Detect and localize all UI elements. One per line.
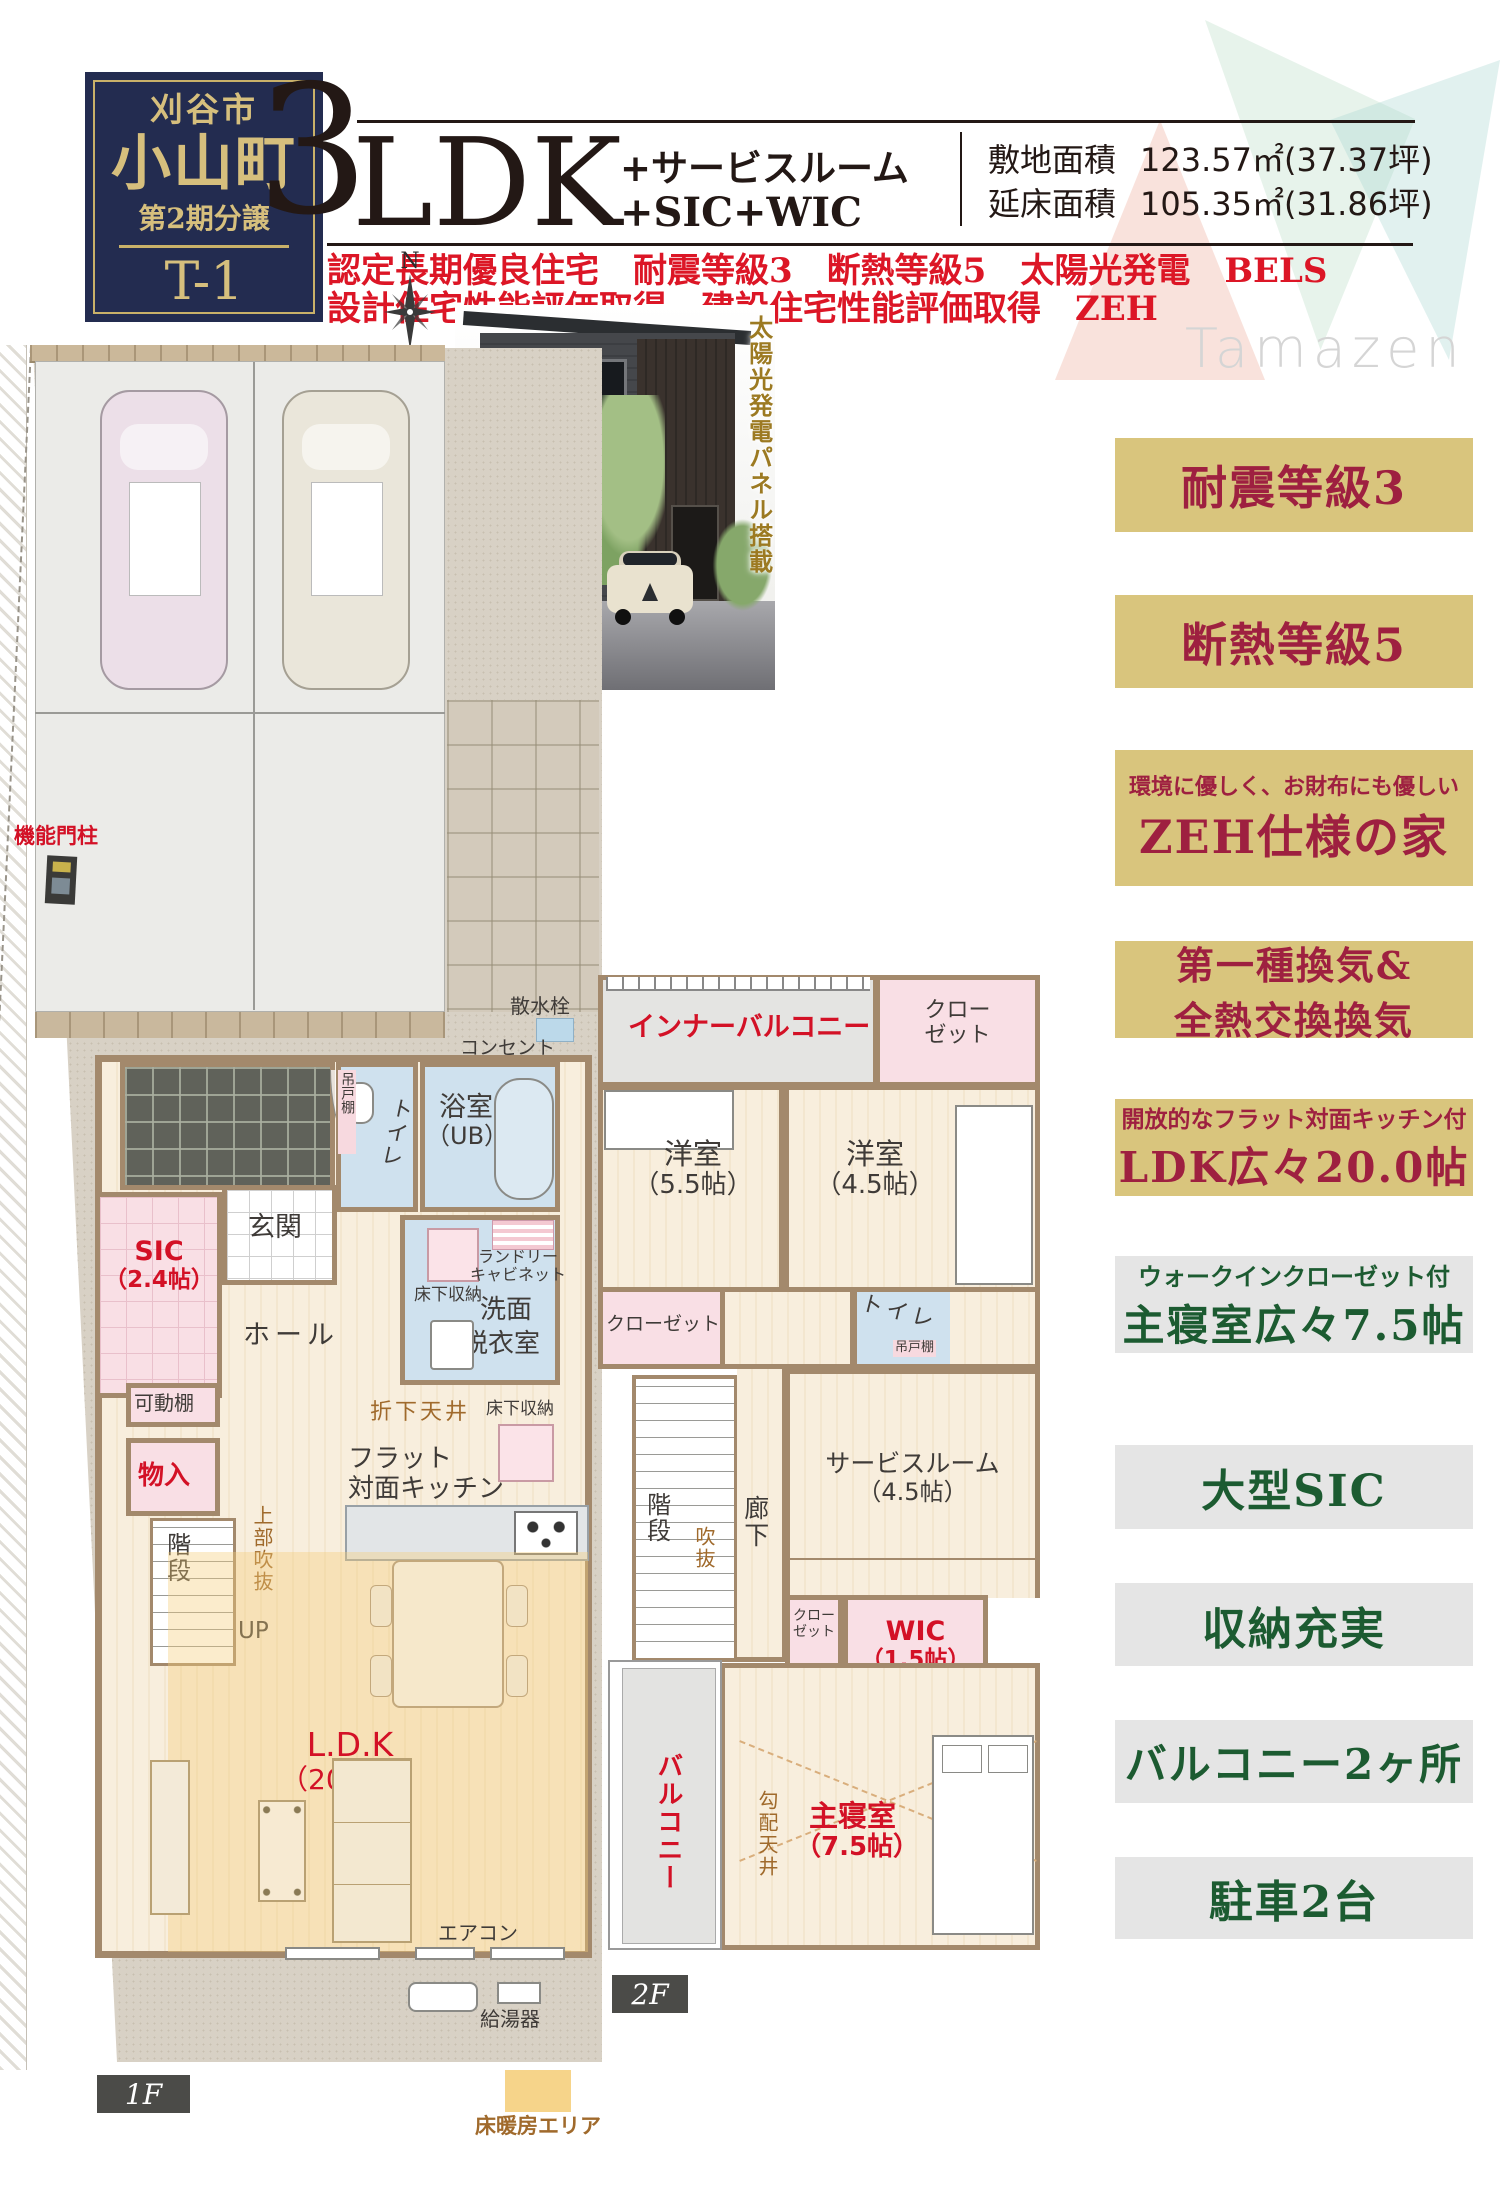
closet-2f-bottom-label: クロー ゼット [787,1608,841,1640]
bath-label-line2: （UB） [426,1123,506,1151]
parked-car-1 [100,390,228,690]
closet-tr-line1: クロー [900,998,1015,1023]
plan-plus2: +SIC+WIC [620,190,862,236]
badge-ventilation-line1: 第一種換気& [1176,935,1412,990]
photo-caption: 太陽光発電パネル搭載 [744,315,772,570]
laundry-mat [492,1220,554,1250]
floor-tag-2f-label: 2F [631,1978,668,2011]
fill-2f-right [950,1287,1040,1369]
kitchen-stove [514,1511,578,1555]
flyer-poster: 刈谷市 小山町 第2期分譲 T-1 3 LDK +サービスルーム +SIC+WI… [0,0,1500,2200]
sic-label: SIC （2.4帖） [100,1236,218,1293]
storage-label: 物入 [138,1462,190,1492]
sic-room [95,1192,222,1398]
parking-divider-h [35,712,445,714]
hanging-cabinet-1f: 吊戸棚 [338,1070,356,1154]
company-logo: Tamazen [1185,318,1466,380]
bedroom-45-label: 洋室 （4.5帖） [800,1138,950,1201]
badge-quake: 耐震等級3 [1115,438,1473,532]
washbasin [430,1320,474,1370]
badge-parking-label: 駐車2台 [1209,1866,1380,1930]
closet-b-line1: クロー [787,1608,841,1624]
underfloor-hatch-2 [498,1424,554,1482]
plan-type: LDK [352,122,622,244]
floor-area-label: 延床面積 [988,186,1116,223]
laundry-cabinet-label: ランドリー キャビネット [468,1248,568,1285]
bedroom-45-line2: （4.5帖） [800,1171,950,1201]
inner-balcony-label: インナーバルコニー [628,1012,870,1043]
movable-shelf-label: 可動棚 [134,1392,194,1415]
badge-ventilation: 第一種換気& 全熱交換換気 [1115,941,1473,1038]
plan-plus1: +サービスルーム [620,148,909,191]
approach-pavers [447,700,599,1012]
dining-chair-1 [370,1585,392,1627]
badge-sic: 大型SIC [1115,1445,1473,1529]
site-area-value: 123.57㎡(37.37坪) [1140,142,1433,179]
gate-pillar-label: 機能門柱 [14,824,98,848]
bath-label: 浴室 （UB） [426,1092,506,1151]
compass-n-letter: N [400,249,419,274]
badge-ldk: 開放的なフラット対面キッチン付 LDK広々20.0帖 [1115,1099,1473,1196]
bed-45 [955,1105,1033,1285]
badge-quake-label: 耐震等級3 [1181,452,1407,518]
master-line2: （7.5帖） [795,1833,910,1863]
dining-chair-3 [370,1655,392,1697]
gate-pillar-icon [45,855,77,905]
service-room-label: サービスルーム （4.5帖） [790,1450,1035,1506]
stairs-2f-label: 階段 [642,1492,670,1612]
sic-label-line1: SIC [100,1236,218,1267]
void-2f-label: 吹抜 [692,1526,715,1586]
parking-divider-v [253,362,255,1010]
bedroom-55-line1: 洋室 [618,1138,768,1171]
window-bottom-1 [285,1947,380,1960]
floor-tag-1f: 1F [97,2075,190,2113]
aircon-label: エアコン [438,1922,518,1945]
badge-zeh-sub: 環境に優しく、お財布にも優しい [1129,769,1459,801]
title-city: 刈谷市 [150,83,258,131]
wic-line1: WIC [848,1616,983,1647]
dining-chair-4 [506,1655,528,1697]
laundry-label-line2: キャビネット [468,1266,568,1284]
badge-parking: 駐車2台 [1115,1857,1473,1939]
window-bottom-3 [490,1947,565,1960]
window-bottom-2 [415,1947,475,1960]
inner-balcony-rail [606,977,870,991]
underfloor-label-2: 床下収納 [486,1400,554,1420]
badge-storage: 収納充実 [1115,1583,1473,1666]
badge-ventilation-line2: 全熱交換換気 [1174,990,1414,1045]
service-room-line2: （4.5帖） [790,1479,1035,1507]
badge-insulation: 断熱等級5 [1115,595,1473,688]
sofa [332,1758,412,1943]
bedroom-55-label: 洋室 （5.5帖） [618,1138,768,1201]
badge-balcony-label: バルコニー2ヶ所 [1125,1731,1463,1792]
closet-2f-topright-label: クロー ゼット [900,998,1015,1049]
paver-strip [35,1012,445,1038]
lowered-ceiling-label: 折下天井 [370,1400,470,1425]
tv-board [150,1760,190,1915]
badge-ldk-sub: 開放的なフラット対面キッチン付 [1122,1100,1467,1134]
site-area-label: 敷地面積 [988,142,1116,179]
sic-label-line2: （2.4帖） [100,1267,218,1293]
master-bed [932,1735,1034,1935]
closet-tr-line2: ゼット [900,1023,1015,1048]
master-line1: 主寝室 [795,1800,910,1833]
laundry-label-line1: ランドリー [468,1248,568,1266]
car-compact [607,551,693,625]
badge-master-sub: ウォークインクローゼット付 [1138,1257,1450,1292]
closet-b-line2: ゼット [787,1624,841,1640]
dining-chair-2 [506,1585,528,1627]
title-unit: T-1 [165,252,244,312]
bedroom-55-line2: （5.5帖） [618,1171,768,1201]
water-heater-unit [497,1982,541,2004]
badge-master: ウォークインクローゼット付 主寝室広々7.5帖 [1115,1256,1473,1353]
sidewalk-hatch [0,345,27,2070]
water-tap-label: 散水栓 [510,995,570,1018]
sloped-ceiling-label: 勾配天井 [755,1790,778,1900]
badge-master-label: 主寝室広々7.5帖 [1122,1292,1465,1353]
corridor-2f-fill [785,1560,1040,1598]
badge-zeh-label: ZEH仕様の家 [1139,801,1449,867]
rule-bottom [327,243,1413,246]
floor-heating-legend-label: 床暖房エリア [470,2114,606,2138]
closet-2f-mid-label: クローゼット [606,1314,720,1336]
master-label: 主寝室 （7.5帖） [795,1800,910,1863]
badge-zeh: 環境に優しく、お財布にも優しい ZEH仕様の家 [1115,750,1473,886]
kitchen-label-line2: 対面キッチン [348,1475,504,1505]
entry-porch-tile [120,1062,335,1190]
balcony-2f-label: バルコニー [652,1752,682,1912]
parked-car-2 [282,390,410,690]
floor-area-value: 105.35㎡(31.86坪) [1140,186,1433,223]
kitchen-label: フラット 対面キッチン [348,1445,504,1505]
bedroom-45-line1: 洋室 [800,1138,950,1171]
underfloor-label-1: 床下収納 [414,1286,482,1306]
washroom-label-1: 洗面 [480,1296,532,1326]
compass-icon: N [378,248,442,352]
hanging-cabinet-2f: 吊戸棚 [893,1340,936,1357]
features-line1: 認定長期優良住宅 耐震等級3 断熱等級5 太陽光発電 BELS [327,252,1327,291]
ac-outdoor-unit [408,1982,478,2012]
hallway-2f-label: 廊下 [740,1495,769,1565]
genkan-label: 玄関 [248,1212,302,1243]
service-room-line1: サービスルーム [790,1450,1035,1479]
badge-storage-label: 収納充実 [1202,1593,1386,1657]
badge-balcony: バルコニー2ヶ所 [1115,1720,1473,1803]
floor-tag-2f: 2F [612,1975,688,2013]
floor-tag-1f-label: 1F [125,2078,162,2111]
hall-label: ホール [243,1320,339,1351]
floor-heating-legend-swatch [505,2070,571,2112]
title-phase: 第2期分譲 [138,197,269,237]
badge-ldk-label: LDK広々20.0帖 [1119,1134,1470,1195]
dining-table [392,1560,504,1708]
bath-label-line1: 浴室 [426,1092,506,1123]
coffee-table [258,1800,306,1902]
spec-divider [960,132,962,226]
badge-insulation-label: 断熱等級5 [1181,609,1407,675]
water-heater-label: 給湯器 [480,2008,540,2031]
badge-sic-label: 大型SIC [1201,1455,1386,1519]
hall-upper-2f [725,1287,855,1369]
kitchen-label-line1: フラット [348,1445,504,1475]
